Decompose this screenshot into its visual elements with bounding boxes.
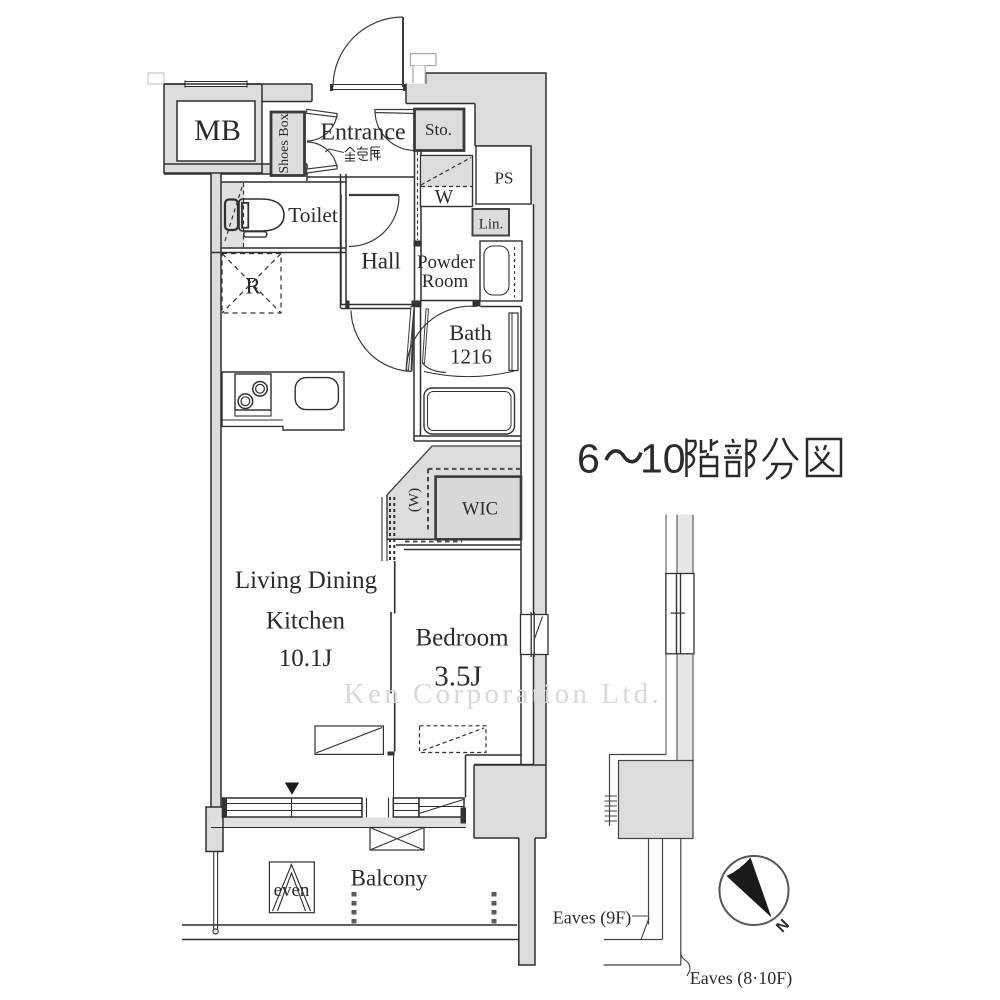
- svg-text:Sto.: Sto.: [425, 120, 452, 139]
- svg-text:MB: MB: [194, 114, 241, 147]
- svg-text:W: W: [435, 187, 454, 208]
- svg-text:Eaves (8·10F): Eaves (8·10F): [690, 968, 792, 989]
- svg-text:PS: PS: [495, 169, 514, 188]
- svg-text:even: even: [274, 880, 310, 901]
- svg-text:Ken Corporation Ltd.: Ken Corporation Ltd.: [344, 678, 662, 710]
- svg-text:Bedroom: Bedroom: [415, 625, 509, 652]
- svg-text:Eaves (9F): Eaves (9F): [553, 908, 631, 929]
- svg-text:Bath: Bath: [449, 320, 492, 345]
- svg-text:R: R: [245, 274, 261, 299]
- svg-text:10: 10: [640, 436, 686, 482]
- svg-text:Entrance: Entrance: [320, 120, 405, 146]
- svg-text:Lin.: Lin.: [479, 217, 504, 233]
- svg-text:Shoes Box: Shoes Box: [277, 113, 292, 173]
- svg-text:Kitchen: Kitchen: [266, 608, 346, 635]
- svg-text:1216: 1216: [450, 345, 492, 369]
- svg-text:(W): (W): [407, 488, 423, 512]
- svg-text:WIC: WIC: [462, 500, 498, 520]
- svg-text:Living Dining: Living Dining: [235, 567, 378, 594]
- svg-text:Hall: Hall: [361, 249, 401, 274]
- svg-text:Toilet: Toilet: [288, 203, 338, 227]
- svg-text:10.1J: 10.1J: [279, 645, 333, 672]
- svg-text:Room: Room: [422, 271, 469, 292]
- svg-text:Powder: Powder: [417, 252, 476, 273]
- svg-text:Balcony: Balcony: [351, 866, 428, 891]
- svg-text:6: 6: [577, 436, 600, 482]
